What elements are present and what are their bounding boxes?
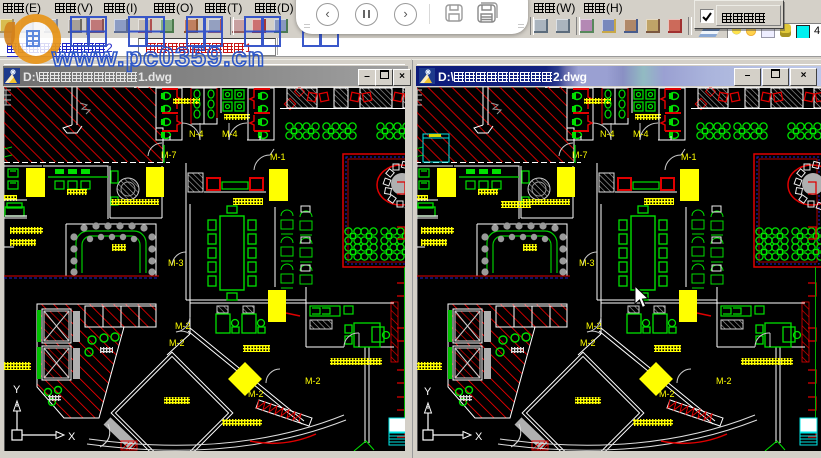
svg-text:Y: Y: [424, 386, 432, 398]
svg-text:X: X: [68, 431, 76, 443]
svg-text:X: X: [475, 431, 483, 443]
svg-text:Y: Y: [13, 384, 21, 396]
